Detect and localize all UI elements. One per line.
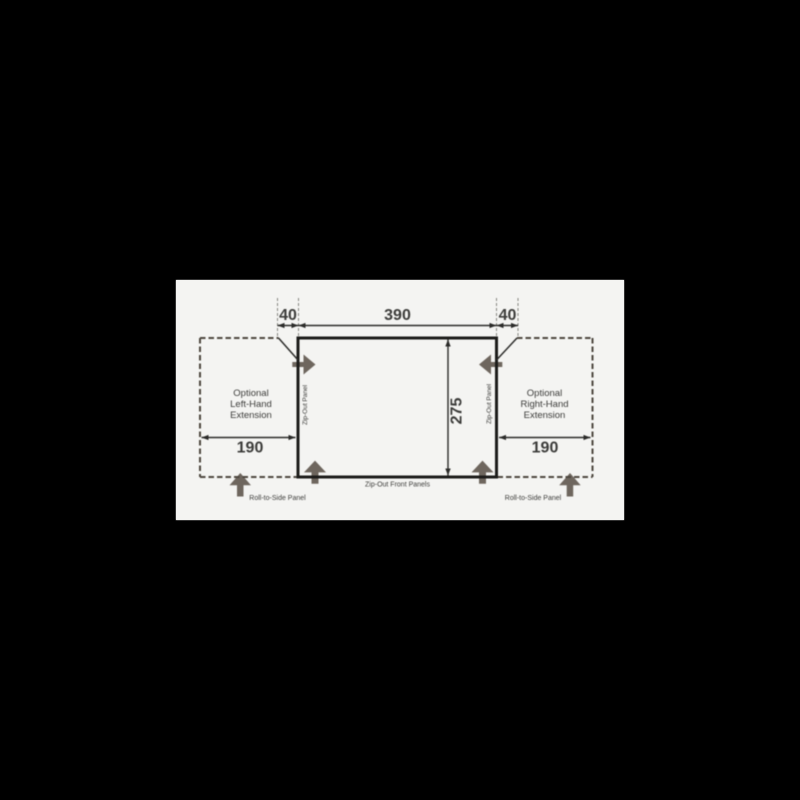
svg-text:Roll-to-Side Panel: Roll-to-Side Panel xyxy=(505,495,562,502)
svg-text:Roll-to-Side Panel: Roll-to-Side Panel xyxy=(249,495,306,502)
svg-text:Extension: Extension xyxy=(230,410,272,421)
svg-text:Optional: Optional xyxy=(233,388,268,399)
svg-text:390: 390 xyxy=(384,307,411,324)
svg-text:Right-Hand: Right-Hand xyxy=(520,399,568,410)
svg-text:Zip-Out Panel: Zip-Out Panel xyxy=(302,384,309,425)
svg-text:Optional: Optional xyxy=(527,388,562,399)
svg-text:Extension: Extension xyxy=(524,410,566,421)
svg-text:275: 275 xyxy=(449,398,466,425)
svg-text:40: 40 xyxy=(279,307,297,324)
svg-text:Zip-Out Front Panels: Zip-Out Front Panels xyxy=(365,482,430,489)
svg-text:190: 190 xyxy=(237,440,264,457)
svg-text:40: 40 xyxy=(499,307,517,324)
svg-text:190: 190 xyxy=(532,440,559,457)
svg-text:Left-Hand: Left-Hand xyxy=(230,399,272,410)
svg-text:Zip-Out Panel: Zip-Out Panel xyxy=(486,383,493,424)
